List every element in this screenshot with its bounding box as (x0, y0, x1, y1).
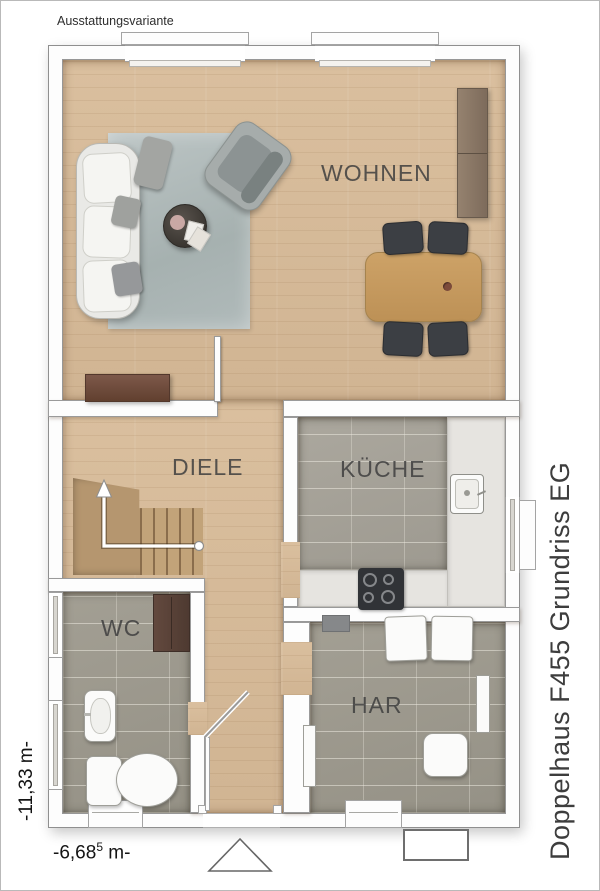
dining-chair-icon (382, 321, 424, 357)
dimension-width: -6,685 m- (53, 840, 130, 864)
radiator-icon (303, 725, 316, 787)
washbasin-icon (84, 690, 116, 742)
stove-icon (358, 568, 404, 610)
entrance-door-opening (203, 813, 280, 828)
window-wc-left-lower (48, 700, 63, 790)
variant-caption: Ausstattungsvariante (57, 14, 174, 28)
floor-kueche (298, 417, 447, 570)
dimension-width-sup: 5 (96, 840, 103, 854)
door-opening-kueche (281, 542, 300, 598)
lowboard-icon (85, 374, 170, 402)
har-shelf-icon (322, 615, 350, 632)
dining-chair-icon (427, 221, 469, 255)
floorplan-page: Ausstattungsvariante (0, 0, 600, 891)
entrance-triangle-icon (209, 839, 271, 871)
washing-machine-icon (384, 615, 428, 661)
window-kueche-right-sill (519, 500, 536, 570)
dimension-width-value: -6,68 (53, 842, 96, 863)
dining-chair-icon (427, 321, 469, 357)
room-label-diele: DIELE (172, 454, 243, 481)
window-top-right-ledge (319, 60, 431, 67)
window-top-right-sill (311, 32, 439, 45)
dining-chair-icon (382, 221, 424, 256)
window-top-left-ledge (129, 60, 241, 67)
window-kueche-right (505, 497, 520, 573)
entrance-door-leaf (205, 737, 210, 811)
window-wc-left-upper (48, 592, 63, 658)
porch-step-outline (403, 829, 469, 861)
wall-wc-top (48, 578, 205, 592)
washing-machine-icon (431, 616, 474, 662)
wall-wohnen-diele (48, 400, 218, 417)
door-opening-wc (188, 702, 207, 735)
kitchen-sink-icon (450, 474, 484, 514)
radiator-icon (476, 675, 490, 733)
sofa-icon (76, 143, 140, 319)
water-tank-icon (423, 733, 468, 777)
toilet-bowl (116, 753, 178, 807)
room-label-kueche: KÜCHE (340, 456, 426, 483)
sideboard-icon (457, 88, 488, 218)
plan-title-vertical: Doppelhaus F455 Grundriss EG (535, 330, 585, 860)
wall-kueche-top (283, 400, 520, 417)
coffee-table-icon (163, 204, 207, 248)
entrance-door-jamb-right (273, 805, 282, 814)
wardrobe-icon (153, 594, 190, 652)
wall-stub (214, 336, 221, 402)
door-opening-har (281, 642, 312, 695)
dining-table-icon (365, 252, 482, 322)
window-har-bottom (345, 800, 402, 828)
dimension-height: -11,33 m- (16, 701, 38, 861)
window-top-left-sill (121, 32, 249, 45)
room-label-har: HAR (351, 692, 403, 719)
room-label-wohnen: WOHNEN (321, 160, 432, 187)
room-label-wc: WC (101, 615, 141, 642)
dimension-width-unit: m- (103, 842, 130, 863)
